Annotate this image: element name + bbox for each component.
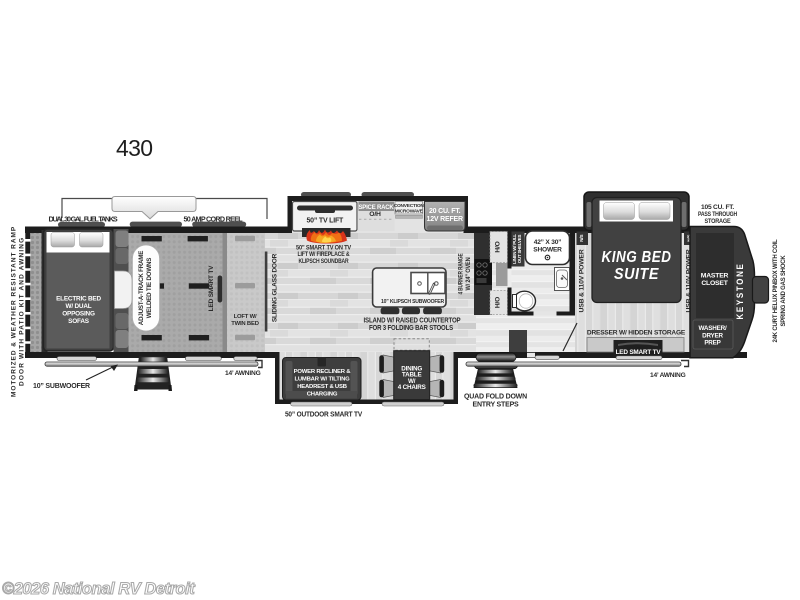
svg-text:QUAD FOLD DOWN: QUAD FOLD DOWN [464, 394, 527, 401]
svg-text:H/O: H/O [495, 241, 502, 252]
svg-text:10” KLIPSCH SUBWOOFER: 10” KLIPSCH SUBWOOFER [381, 299, 444, 305]
svg-text:KEYSTONE: KEYSTONE [735, 263, 746, 320]
svg-text:SLIDING GLASS DOOR: SLIDING GLASS DOOR [272, 253, 279, 322]
svg-text:SPICE RACK: SPICE RACK [358, 205, 394, 211]
svg-text:50” OUTDOOR SMART TV: 50” OUTDOOR SMART TV [285, 412, 362, 419]
svg-text:DOOR WITH PATIO KIT AND AWNING: DOOR WITH PATIO KIT AND AWNING [19, 238, 26, 386]
svg-text:SPRING AND GAS SHOCK: SPRING AND GAS SHOCK [780, 255, 787, 327]
svg-text:LUMBAR W/ TILTING: LUMBAR W/ TILTING [294, 377, 350, 383]
svg-text:SOFAS: SOFAS [68, 318, 90, 325]
svg-text:W/ 24” OVEN: W/ 24” OVEN [466, 258, 472, 291]
svg-text:24K CURT HELUX PINBOX WITH COI: 24K CURT HELUX PINBOX WITH COIL [772, 239, 779, 342]
svg-text:POWER RECLINER &: POWER RECLINER & [294, 369, 352, 375]
svg-text:W/ DUAL: W/ DUAL [66, 303, 92, 310]
svg-text:20 CU. FT.: 20 CU. FT. [429, 208, 461, 215]
svg-text:DRYER: DRYER [702, 332, 723, 339]
svg-text:CHARGING: CHARGING [307, 391, 338, 397]
svg-text:50” TV LIFT: 50” TV LIFT [306, 218, 344, 225]
svg-text:PASS THROUGH: PASS THROUGH [698, 211, 738, 218]
svg-text:©2026 National RV Detroit: ©2026 National RV Detroit [2, 580, 196, 598]
svg-text:OUT SHELVES: OUT SHELVES [517, 235, 522, 264]
svg-text:TWIN BED: TWIN BED [231, 321, 259, 327]
svg-text:DRESSER W/ HIDDEN STORAGE: DRESSER W/ HIDDEN STORAGE [587, 330, 686, 337]
svg-text:H/O: H/O [495, 297, 502, 308]
svg-text:ISLAND W/ RAISED COUNTERTOP: ISLAND W/ RAISED COUNTERTOP [364, 317, 461, 324]
svg-text:105 CU. FT.: 105 CU. FT. [701, 204, 735, 211]
svg-text:ELECTRIC BED: ELECTRIC BED [56, 296, 101, 303]
svg-text:O/H: O/H [369, 211, 381, 218]
svg-text:MOTORIZED & WEATHER RESISTANT: MOTORIZED & WEATHER RESISTANT RAMP [11, 226, 18, 397]
svg-text:14’ AWNING: 14’ AWNING [225, 370, 261, 377]
svg-text:STORAGE: STORAGE [705, 218, 731, 225]
svg-text:42” X 30”: 42” X 30” [534, 239, 562, 246]
svg-text:LED SMART TV: LED SMART TV [208, 265, 215, 311]
svg-text:WELDED TIE DOWNS: WELDED TIE DOWNS [146, 258, 153, 318]
svg-text:430: 430 [116, 135, 153, 161]
svg-text:PREP: PREP [704, 340, 720, 347]
svg-text:LIFT W/ FIREPLACE &: LIFT W/ FIREPLACE & [298, 252, 351, 258]
svg-text:LOFT W/: LOFT W/ [234, 314, 257, 320]
svg-text:10” SUBWOOFER: 10” SUBWOOFER [33, 383, 90, 390]
svg-text:ADJUST-A-TRACK FRAME: ADJUST-A-TRACK FRAME [138, 251, 145, 325]
svg-text:FOR 3 FOLDING BAR STOOLS: FOR 3 FOLDING BAR STOOLS [369, 325, 453, 332]
svg-text:MASTER: MASTER [701, 273, 729, 280]
svg-text:LINEN W/ PULL: LINEN W/ PULL [512, 234, 517, 264]
svg-text:KING BED: KING BED [602, 249, 672, 266]
svg-text:LED SMART TV: LED SMART TV [616, 349, 662, 356]
svg-text:50” SMART TV ON TV: 50” SMART TV ON TV [296, 246, 351, 252]
svg-text:SHOWER: SHOWER [533, 247, 562, 254]
svg-text:14’ AWNING: 14’ AWNING [650, 372, 686, 379]
svg-text:MICROWAVE: MICROWAVE [395, 208, 424, 214]
svg-text:SUITE: SUITE [614, 266, 659, 283]
svg-text:ENTRY STEPS: ENTRY STEPS [472, 402, 519, 409]
svg-text:CONVECTION: CONVECTION [394, 203, 425, 209]
svg-text:HEADREST & USB: HEADREST & USB [297, 384, 347, 390]
svg-text:OPPOSING: OPPOSING [62, 311, 95, 318]
svg-text:12V REFER: 12V REFER [427, 216, 463, 223]
svg-text:KLIPSCH SOUNDBAR: KLIPSCH SOUNDBAR [299, 259, 350, 265]
svg-text:USB & 110V POWER: USB & 110V POWER [580, 249, 586, 313]
svg-text:WASHER/: WASHER/ [699, 325, 727, 332]
svg-text:4 CHAIRS: 4 CHAIRS [398, 384, 426, 391]
svg-text:CLOSET: CLOSET [701, 280, 728, 287]
svg-text:N/S: N/S [579, 235, 584, 242]
svg-text:4 BURNER RANGE: 4 BURNER RANGE [459, 253, 465, 294]
